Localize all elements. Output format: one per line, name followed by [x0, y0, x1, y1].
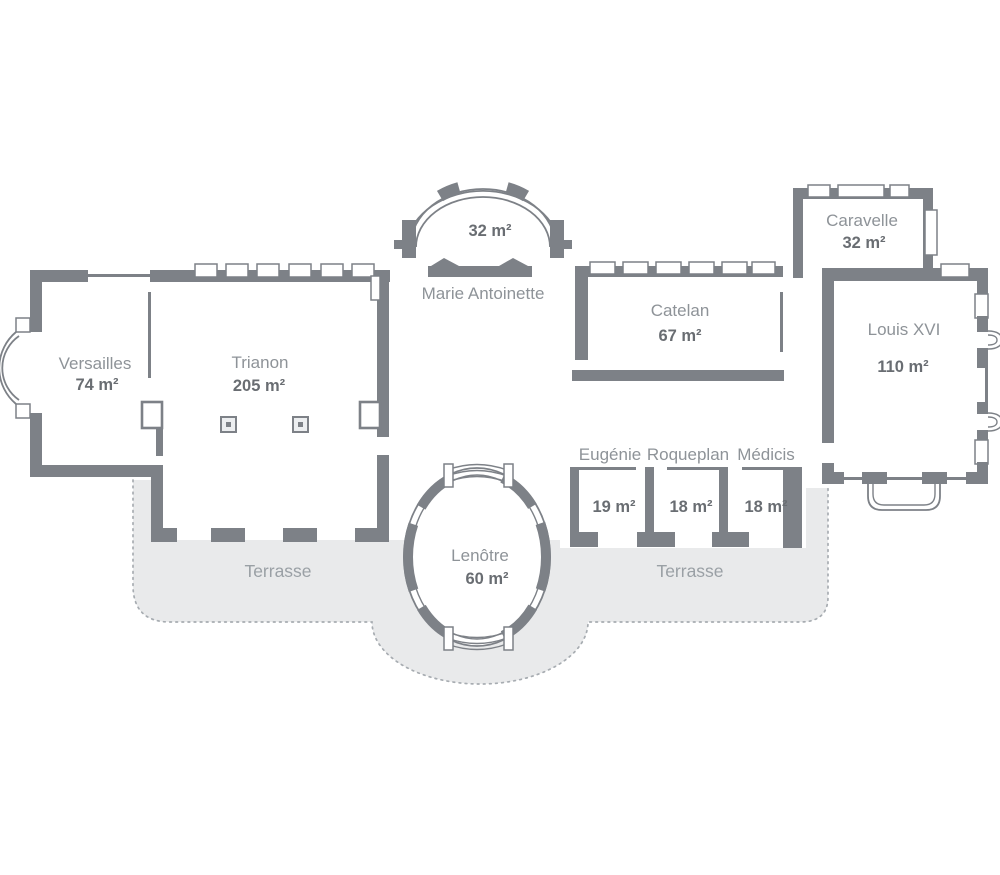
room-versailles [0, 270, 390, 477]
floor-plan: Versailles 74 m² Trianon 205 m² 32 m² Ma… [0, 0, 1000, 875]
room-lenotre-area: 60 m² [465, 570, 509, 588]
door-frame-right [360, 402, 380, 428]
room-eugenie-area: 19 m² [592, 498, 636, 516]
room-louis-xvi [822, 264, 1000, 510]
terrace-label-left: Terrasse [244, 561, 311, 581]
room-roqueplan-name: Roqueplan [647, 445, 729, 464]
door-frame-left [142, 402, 163, 456]
column [293, 417, 308, 432]
room-roqueplan-area: 18 m² [669, 498, 713, 516]
room-catelan-area: 67 m² [658, 327, 702, 345]
room-trianon [151, 264, 389, 542]
entrance-steps [868, 481, 940, 510]
room-caravelle-area: 32 m² [842, 234, 886, 252]
room-versailles-area: 74 m² [75, 376, 119, 394]
room-medicis-area: 18 m² [744, 498, 788, 516]
room-caravelle [793, 185, 937, 278]
bay-window [0, 318, 30, 418]
room-marie-antoinette-name: Marie Antoinette [422, 284, 545, 303]
caravelle-windows [808, 185, 909, 197]
room-medicis-name: Médicis [737, 445, 795, 464]
room-versailles-name: Versailles [59, 354, 132, 373]
terrace-label-right: Terrasse [656, 561, 723, 581]
room-trianon-name: Trianon [231, 353, 288, 372]
floor-plan-svg: Versailles 74 m² Trianon 205 m² 32 m² Ma… [0, 0, 1000, 875]
door-swing [988, 331, 1000, 349]
room-trianon-area: 205 m² [233, 377, 286, 395]
room-catelan-name: Catelan [651, 301, 710, 320]
room-catelan [572, 262, 784, 381]
room-caravelle-name: Caravelle [826, 211, 898, 230]
door-swing [988, 413, 1000, 431]
room-lenotre-name: Lenôtre [451, 546, 509, 565]
column [221, 417, 236, 432]
room-louis-xvi-name: Louis XVI [868, 320, 941, 339]
room-louis-xvi-area: 110 m² [877, 358, 929, 376]
room-marie-antoinette-area: 32 m² [468, 222, 512, 240]
room-eugenie-name: Eugénie [579, 445, 641, 464]
